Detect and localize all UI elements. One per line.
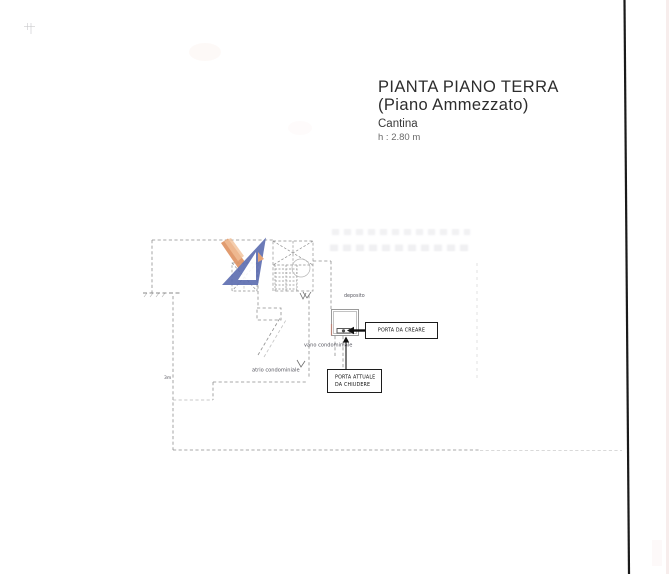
scanned-page: PIANTA PIANO TERRA (Piano Ammezzato) Can… [0, 0, 669, 574]
vano-condominiale-label: vano condominiale [304, 342, 352, 348]
scan-smudges [189, 43, 662, 566]
retaining-wall-segment [143, 293, 180, 297]
ceiling-height-note: h : 2.80 m [378, 132, 420, 143]
door-to-create-callout: PORTA DA CREARE [365, 322, 438, 339]
deposito-label: deposito [344, 293, 365, 299]
corner-registration-mark [24, 23, 35, 34]
plan-title: PIANTA PIANO TERRA [378, 78, 559, 97]
plan-subtitle: (Piano Ammezzato) [378, 96, 529, 115]
door-to-close-text: PORTA ATTUALE DA CHIUDERE [335, 374, 375, 388]
room-type-label: Cantina [378, 118, 418, 130]
atrio-condominiale-label: atrio condominiale [252, 367, 300, 373]
stairwell [273, 241, 313, 298]
agency-logo-watermark [221, 238, 266, 286]
plan-outline [152, 240, 622, 451]
door-to-create-text: PORTA DA CREARE [378, 327, 425, 334]
watermark-text-artifact [330, 232, 473, 248]
dimension-label: 3m [164, 375, 171, 380]
door-swing-marks [297, 293, 306, 367]
floor-plan-drawing [0, 0, 669, 574]
scan-edge-line [625, 0, 669, 574]
door-to-close-callout: PORTA ATTUALE DA CHIUDERE [327, 369, 382, 393]
